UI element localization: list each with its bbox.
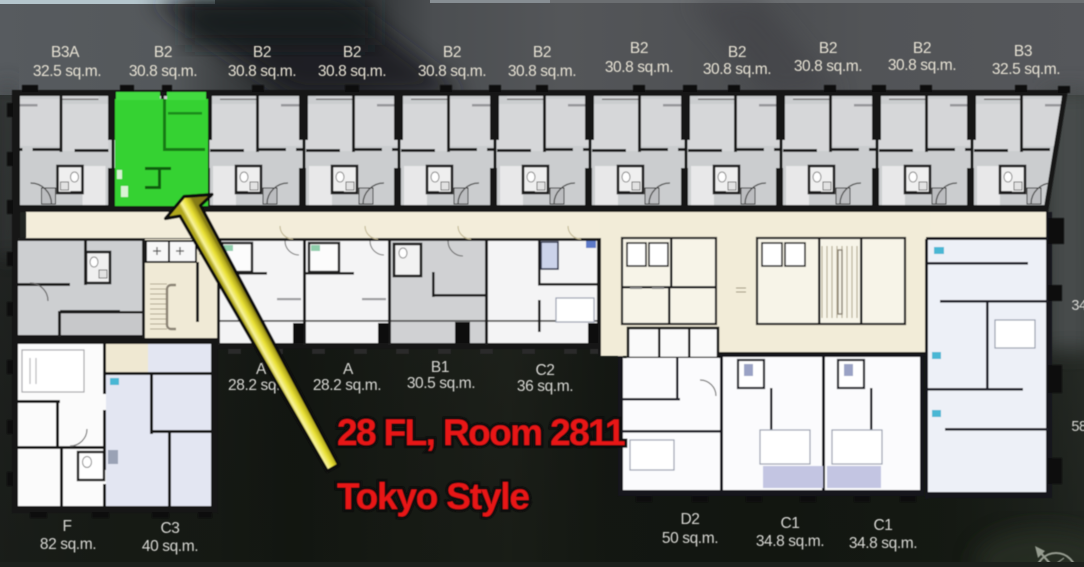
svg-text:34.8 sq.m.: 34.8 sq.m.: [849, 535, 917, 552]
svg-text:A: A: [343, 361, 354, 378]
svg-text:B2: B2: [819, 40, 837, 57]
svg-text:34.8 sq.m.: 34.8 sq.m.: [756, 533, 824, 550]
svg-text:B2: B2: [154, 44, 172, 61]
svg-text:B3: B3: [1014, 43, 1032, 60]
svg-text:50 sq.m.: 50 sq.m.: [662, 530, 718, 547]
svg-text:Tokyo Style: Tokyo Style: [337, 476, 529, 517]
svg-text:82 sq.m.: 82 sq.m.: [40, 536, 96, 553]
svg-text:C3: C3: [160, 520, 179, 537]
svg-text:B2: B2: [253, 44, 271, 61]
svg-text:B2: B2: [913, 40, 931, 57]
svg-text:C2: C2: [535, 362, 554, 379]
svg-text:C1: C1: [780, 515, 799, 532]
svg-text:36 sq.m.: 36 sq.m.: [517, 378, 573, 395]
svg-text:30.8 sq.m.: 30.8 sq.m.: [129, 63, 197, 80]
svg-text:28.2 sq.: 28.2 sq.: [228, 377, 280, 394]
svg-text:C1: C1: [873, 517, 892, 534]
svg-text:B1: B1: [431, 359, 449, 376]
svg-text:30.8 sq.m.: 30.8 sq.m.: [318, 63, 386, 80]
svg-text:30.5 sq.m.: 30.5 sq.m.: [407, 375, 475, 392]
svg-text:B3A: B3A: [51, 44, 80, 61]
svg-text:28.2 sq.m.: 28.2 sq.m.: [313, 377, 381, 394]
svg-text:28 FL, Room 2811: 28 FL, Room 2811: [337, 412, 625, 453]
svg-text:30.8 sq.m.: 30.8 sq.m.: [508, 63, 576, 80]
svg-text:58: 58: [1071, 419, 1084, 435]
svg-text:B2: B2: [443, 44, 461, 61]
svg-text:B2: B2: [343, 44, 361, 61]
svg-text:B2: B2: [630, 40, 648, 57]
svg-text:30.8 sq.m.: 30.8 sq.m.: [605, 59, 673, 76]
svg-text:32.5 sq.m.: 32.5 sq.m.: [33, 63, 101, 80]
svg-text:B2: B2: [533, 44, 551, 61]
svg-text:D2: D2: [680, 511, 699, 528]
svg-text:40 sq.m.: 40 sq.m.: [142, 538, 198, 555]
svg-text:32.5 sq.m.: 32.5 sq.m.: [992, 61, 1060, 78]
svg-text:30.8 sq.m.: 30.8 sq.m.: [703, 61, 771, 78]
svg-text:30.8 sq.m.: 30.8 sq.m.: [228, 63, 296, 80]
svg-text:30.8 sq.m.: 30.8 sq.m.: [418, 63, 486, 80]
svg-text:30.8 sq.m.: 30.8 sq.m.: [794, 58, 862, 75]
svg-text:34: 34: [1071, 298, 1084, 314]
svg-text:30.8 sq.m.: 30.8 sq.m.: [888, 57, 956, 74]
svg-text:B2: B2: [728, 44, 746, 61]
svg-text:F: F: [62, 518, 71, 535]
